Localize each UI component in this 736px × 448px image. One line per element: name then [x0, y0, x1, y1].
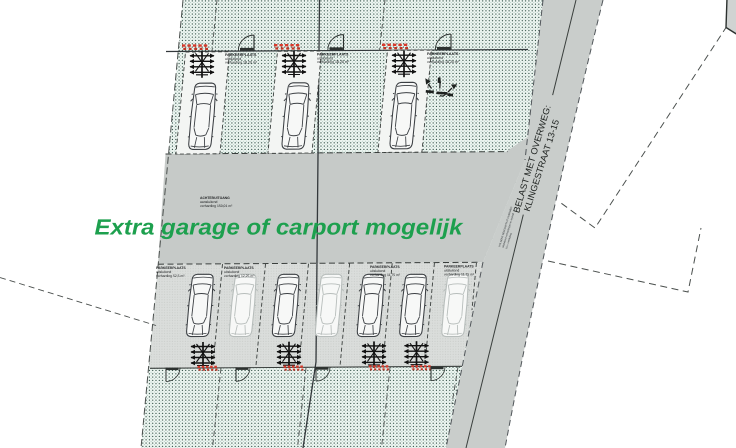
svg-text:verharding 150,01 m²: verharding 150,01 m²	[200, 204, 233, 208]
svg-text:verharding 11,75 m²: verharding 11,75 m²	[444, 273, 475, 277]
svg-text:verharding 12,25 m²: verharding 12,25 m²	[224, 274, 255, 278]
svg-text:verharding 18,20 m²: verharding 18,20 m²	[427, 60, 460, 64]
svg-text:verharding 18,20 m²: verharding 18,20 m²	[225, 61, 258, 65]
svg-text:verharding 18,20 m²: verharding 18,20 m²	[317, 60, 350, 64]
svg-text:verharding 52,5 m²: verharding 52,5 m²	[156, 274, 185, 278]
svg-text:verharding 11,75 m²: verharding 11,75 m²	[370, 273, 401, 277]
svg-text:Extra garage of carport mogeli: Extra garage of carport mogelijk	[95, 215, 465, 240]
